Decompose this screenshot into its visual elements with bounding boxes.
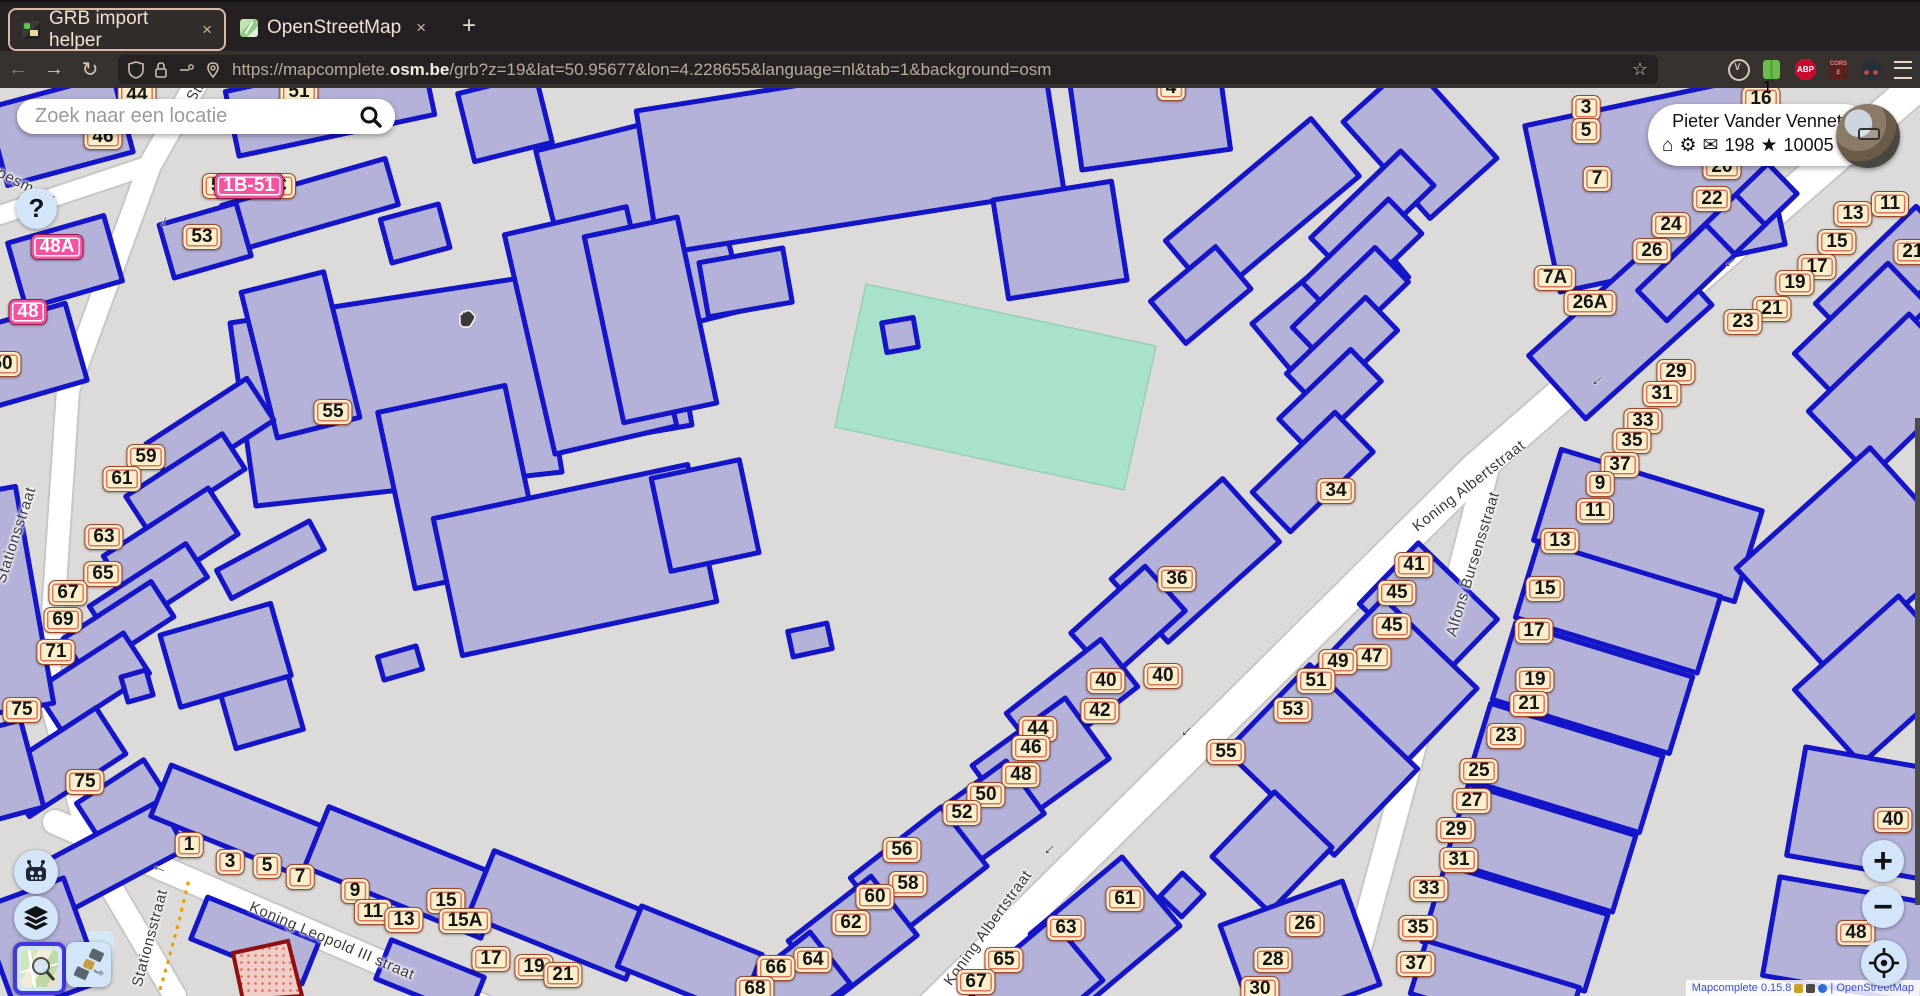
layers-icon	[22, 904, 50, 932]
map-edge-scrollbar[interactable]	[1915, 418, 1920, 905]
grb-favicon-icon	[22, 21, 40, 39]
map-canvas[interactable]: StationsstraatStationsstraatStaoesmeerKo…	[0, 88, 1920, 996]
house-number-badge[interactable]: 65	[83, 561, 122, 587]
tab-title: GRB import helper	[49, 8, 187, 52]
house-number-badge[interactable]: 35	[1612, 428, 1651, 454]
house-number-badge[interactable]: 30	[1240, 976, 1279, 996]
house-number-badge[interactable]: 45	[1377, 580, 1416, 606]
house-number-badge[interactable]: 50	[0, 351, 22, 377]
tab-bar: GRB import helper × OpenStreetMap × +	[0, 0, 1920, 53]
house-number-badge[interactable]: 7	[286, 864, 315, 890]
house-number-badge[interactable]: 45	[1372, 613, 1411, 639]
automation-robot-button[interactable]	[14, 850, 58, 894]
house-number-badge[interactable]: 52	[942, 800, 981, 826]
house-number-badge[interactable]: 40	[1086, 668, 1125, 694]
house-number-badge[interactable]: 11	[1576, 498, 1614, 524]
zoom-out-button[interactable]: −	[1862, 886, 1904, 928]
house-number-badge[interactable]: 15	[1525, 576, 1564, 602]
extension-icons: 1 ABP CORS E	[1728, 51, 1912, 88]
home-icon[interactable]: ⌂	[1662, 135, 1673, 157]
house-number-badge[interactable]: 48A	[31, 234, 84, 260]
house-number-badge[interactable]: 11	[1871, 191, 1909, 217]
grab-cursor-icon	[455, 306, 479, 335]
tab-close-icon[interactable]: ×	[202, 20, 212, 40]
house-number-badge[interactable]: 7A	[1534, 265, 1576, 291]
house-number-badge[interactable]: 48	[1001, 762, 1040, 788]
house-number-badge[interactable]: 31	[1439, 847, 1478, 873]
attribution-mini-icon	[1818, 984, 1827, 993]
house-number-badge[interactable]: 31	[1642, 381, 1681, 407]
house-number-badge[interactable]: 29	[1436, 817, 1475, 843]
tab-title: OpenStreetMap	[267, 17, 401, 39]
message-count: 198	[1724, 135, 1754, 156]
tab-openstreetmap[interactable]: OpenStreetMap ×	[228, 8, 452, 47]
new-tab-button[interactable]: +	[462, 12, 476, 40]
user-name: Pieter Vander Vennet	[1666, 111, 1848, 132]
permissions-icon[interactable]	[178, 61, 196, 79]
back-button[interactable]: ←	[0, 58, 36, 81]
house-number-badge[interactable]: 13	[1540, 528, 1579, 554]
robot-icon	[22, 858, 50, 886]
house-number-badge[interactable]: 61	[1105, 886, 1144, 912]
menu-icon[interactable]	[1894, 61, 1912, 79]
house-number-badge[interactable]: 1	[175, 832, 204, 858]
house-number-badge[interactable]: 41	[1394, 552, 1433, 578]
house-number-badge[interactable]: 48	[8, 299, 47, 325]
house-number-badge[interactable]: 37	[1396, 951, 1435, 977]
house-number-badge[interactable]: 75	[2, 697, 41, 723]
house-number-badge[interactable]: 56	[882, 837, 921, 863]
pocket-icon[interactable]	[1728, 59, 1750, 81]
grb-import-building[interactable]	[233, 941, 302, 996]
background-satellite-button[interactable]	[66, 942, 111, 987]
background-osm-button[interactable]	[13, 942, 66, 995]
house-number-badge[interactable]: 67	[956, 969, 995, 995]
house-number-badge[interactable]: 36	[1157, 566, 1196, 592]
house-number-badge[interactable]: 13	[384, 907, 423, 933]
house-number-badge[interactable]: 35	[1398, 915, 1437, 941]
attribution-osm-link[interactable]: | OpenStreetMap	[1830, 982, 1914, 994]
location-pin-icon[interactable]	[206, 61, 220, 79]
house-number-badge[interactable]: 46	[1011, 735, 1050, 761]
satellite-icon	[72, 948, 106, 982]
house-number-badge[interactable]: 3	[216, 849, 245, 875]
adblock-icon[interactable]: ABP	[1795, 59, 1816, 80]
house-number-badge[interactable]: 17	[1514, 618, 1553, 644]
house-number-badge[interactable]: 63	[84, 524, 123, 550]
house-number-badge[interactable]: 5	[253, 853, 282, 879]
house-number-badge[interactable]: 19	[1515, 667, 1554, 693]
browser-chrome: GRB import helper × OpenStreetMap × + ← …	[0, 0, 1920, 88]
house-number-badge[interactable]: 55	[313, 399, 352, 425]
house-number-badge[interactable]: 15	[1817, 229, 1856, 255]
osm-favicon-icon	[240, 19, 258, 37]
house-number-badge[interactable]: 7	[1583, 166, 1612, 192]
house-number-badge[interactable]: 63	[1046, 915, 1085, 941]
house-number-badge[interactable]: 23	[1723, 309, 1762, 335]
house-number-badge[interactable]: 4	[1157, 88, 1186, 101]
house-number-badge[interactable]: 68	[735, 976, 774, 996]
attribution-mini-icon	[1794, 984, 1803, 993]
reload-button[interactable]: ↻	[72, 57, 108, 82]
zoom-in-button[interactable]: +	[1862, 840, 1904, 882]
house-number-badge[interactable]: 64	[793, 947, 832, 973]
house-number-badge[interactable]: 27	[1452, 788, 1491, 814]
layers-button[interactable]	[14, 896, 58, 940]
house-number-badge[interactable]: 61	[102, 466, 141, 492]
house-number-badge[interactable]: 24	[1651, 212, 1690, 238]
url-text: https://mapcomplete.osm.be/grb?z=19&lat=…	[232, 60, 1051, 80]
house-number-badge[interactable]: 40	[1143, 663, 1182, 689]
house-number-badge[interactable]: 21	[1509, 691, 1548, 717]
house-number-badge[interactable]: 34	[1316, 478, 1355, 504]
attribution-mini-icon	[1806, 984, 1815, 993]
house-number-badge[interactable]: 1B-51	[214, 173, 284, 199]
house-number-badge[interactable]: 13	[1833, 201, 1872, 227]
cors-extension-icon[interactable]: CORS E	[1829, 60, 1848, 79]
house-number-badge[interactable]: 5	[1572, 118, 1601, 144]
shield-icon[interactable]	[128, 61, 144, 79]
house-number-badge[interactable]: 22	[1692, 186, 1731, 212]
house-number-badge[interactable]: 26	[1285, 911, 1324, 937]
house-number-badge[interactable]: 21	[543, 962, 582, 988]
help-button[interactable]: ?	[16, 188, 57, 229]
map-base-layer	[0, 88, 1920, 996]
crosshair-icon	[1868, 947, 1900, 979]
monkey-extension-icon[interactable]	[1861, 60, 1881, 80]
bookmark-star-icon[interactable]: ☆	[1632, 59, 1648, 80]
house-number-badge[interactable]: 40	[1873, 807, 1912, 833]
url-bar[interactable]: https://mapcomplete.osm.be/grb?z=19&lat=…	[118, 55, 1658, 84]
house-number-badge[interactable]: 53	[1273, 697, 1312, 723]
house-number-badge[interactable]: 17	[471, 946, 510, 972]
house-number-badge[interactable]: 23	[1486, 723, 1525, 749]
lock-icon[interactable]	[154, 61, 168, 79]
house-number-badge[interactable]: 60	[855, 884, 894, 910]
house-number-badge[interactable]: 33	[1409, 876, 1448, 902]
extension-badge: 1	[1763, 79, 1772, 96]
tab-close-icon[interactable]: ×	[416, 18, 426, 38]
house-number-badge[interactable]: 69	[43, 607, 82, 633]
star-icon: ★	[1761, 134, 1778, 157]
house-number-badge[interactable]: 71	[36, 639, 75, 665]
changeset-count: 10005	[1784, 135, 1834, 156]
house-number-badge[interactable]: 26	[1632, 238, 1671, 264]
house-number-badge[interactable]: 25	[1459, 758, 1498, 784]
house-number-badge[interactable]: 28	[1253, 947, 1292, 973]
attribution-app: Mapcomplete 0.15.8	[1692, 982, 1792, 994]
osm-thumbnail-icon	[21, 950, 58, 987]
user-avatar[interactable]	[1836, 104, 1900, 168]
house-number-badge[interactable]: 75	[65, 769, 104, 795]
house-number-badge[interactable]: 42	[1080, 698, 1119, 724]
house-number-badge[interactable]: 62	[831, 910, 870, 936]
gear-icon[interactable]: ⚙	[1679, 134, 1696, 157]
house-number-badge[interactable]: 53	[182, 224, 221, 250]
search-input[interactable]	[33, 104, 359, 129]
house-number-badge[interactable]: 67	[48, 580, 87, 606]
house-number-badge[interactable]: 21	[1893, 239, 1920, 265]
house-number-badge[interactable]: 26A	[1564, 290, 1617, 316]
extension-green-icon[interactable]: 1	[1763, 60, 1782, 79]
user-stats: ⌂ ⚙ ✉ 198 ★ 10005	[1662, 134, 1862, 157]
house-number-badge[interactable]: 9	[1586, 471, 1615, 497]
tab-grb-import-helper[interactable]: GRB import helper ×	[8, 8, 226, 51]
house-number-badge[interactable]: 51	[1296, 668, 1335, 694]
geolocate-button[interactable]	[1861, 940, 1907, 986]
house-number-badge[interactable]: 15A	[439, 908, 492, 934]
search-box[interactable]	[17, 99, 395, 134]
house-number-badge[interactable]: 55	[1206, 739, 1245, 765]
forward-button[interactable]: →	[36, 58, 72, 81]
mail-icon[interactable]: ✉	[1703, 134, 1719, 157]
house-number-badge[interactable]: 19	[1775, 270, 1814, 296]
house-number-badge[interactable]: 47	[1352, 644, 1391, 670]
search-icon[interactable]	[359, 105, 383, 129]
browser-toolbar: ← → ↻ https://mapcomplete.osm.be/grb?z=1…	[0, 51, 1920, 88]
